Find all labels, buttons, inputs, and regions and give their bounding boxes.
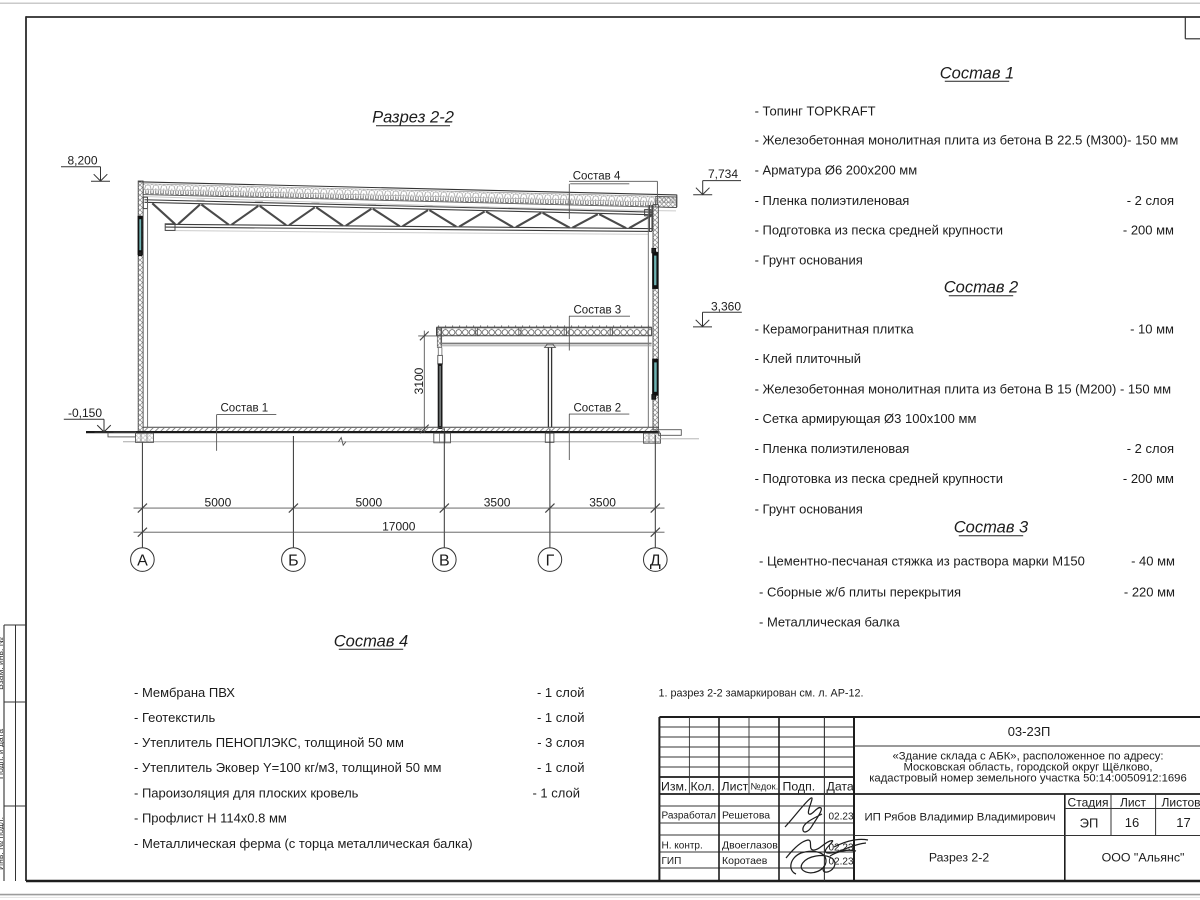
- svg-text:- Подготовка из песка средней: - Подготовка из песка средней крупности: [755, 471, 1003, 486]
- svg-text:1. разрез 2-2 замаркирован см.: 1. разрез 2-2 замаркирован см. л. АР-12.: [659, 687, 864, 699]
- svg-text:- 200 мм: - 200 мм: [1123, 471, 1174, 486]
- svg-text:- 1 слой: - 1 слой: [537, 760, 585, 775]
- svg-text:- Металлическая ферма (с торца: - Металлическая ферма (с торца металличе…: [134, 836, 473, 851]
- svg-text:№док.: №док.: [751, 782, 779, 793]
- svg-text:Изм.: Изм.: [661, 780, 687, 794]
- svg-text:Б: Б: [288, 552, 299, 569]
- svg-text:А: А: [137, 552, 148, 569]
- svg-text:- Пароизоляция для плоских кро: - Пароизоляция для плоских кровель: [134, 786, 359, 801]
- svg-text:- Утеплитель ПЕНОПЛЭКС, толщин: - Утеплитель ПЕНОПЛЭКС, толщиной 50 мм: [134, 735, 404, 750]
- svg-text:Инв. № подл.: Инв. № подл.: [0, 817, 5, 870]
- svg-text:5000: 5000: [355, 495, 382, 509]
- svg-text:- 40 мм: - 40 мм: [1131, 554, 1175, 569]
- svg-text:17: 17: [1176, 815, 1190, 830]
- svg-text:Состав 2: Состав 2: [944, 279, 1018, 297]
- svg-text:Н. контр.: Н. контр.: [662, 841, 703, 852]
- svg-text:ООО "Альянс": ООО "Альянс": [1102, 851, 1185, 865]
- svg-text:- 1 слой: - 1 слой: [537, 685, 585, 700]
- svg-text:ГИП: ГИП: [662, 856, 682, 867]
- svg-text:Стадия: Стадия: [1068, 796, 1109, 810]
- svg-text:- 220 мм: - 220 мм: [1124, 585, 1175, 600]
- svg-text:- 1 слой: - 1 слой: [537, 710, 585, 725]
- svg-text:Разрез 2-2: Разрез 2-2: [929, 851, 990, 865]
- svg-text:- Арматура Ø6 200х200 мм: - Арматура Ø6 200х200 мм: [755, 163, 918, 178]
- svg-text:- 2 слоя: - 2 слоя: [1127, 193, 1174, 208]
- svg-text:03-23П: 03-23П: [1008, 724, 1051, 739]
- svg-text:-0,150: -0,150: [68, 406, 102, 420]
- svg-text:Состав 3: Состав 3: [954, 519, 1029, 537]
- svg-text:3500: 3500: [589, 495, 616, 509]
- svg-text:Лист: Лист: [722, 780, 749, 794]
- svg-text:- 2 слоя: - 2 слоя: [1127, 441, 1174, 456]
- svg-text:Взам. инв. №: Взам. инв. №: [0, 637, 5, 690]
- svg-text:- Сборные ж/б плиты перекрытия: - Сборные ж/б плиты перекрытия: [759, 585, 961, 600]
- svg-text:- Грунт основания: - Грунт основания: [755, 502, 863, 517]
- svg-text:Подп. и дата: Подп. и дата: [0, 729, 5, 779]
- svg-text:3100: 3100: [412, 367, 426, 394]
- svg-text:кадастровый номер земельного у: кадастровый номер земельного участка 50:…: [869, 773, 1187, 785]
- svg-text:- Цементно-песчаная стяжка из: - Цементно-песчаная стяжка из раствора м…: [759, 554, 1085, 569]
- svg-text:Листов: Листов: [1162, 796, 1200, 810]
- svg-text:- 200 мм: - 200 мм: [1123, 223, 1174, 238]
- svg-text:Состав 2: Состав 2: [574, 403, 622, 415]
- svg-text:- 10 мм: - 10 мм: [1130, 322, 1174, 337]
- svg-text:Разрез 2-2: Разрез 2-2: [372, 109, 454, 127]
- svg-text:5000: 5000: [205, 495, 232, 509]
- svg-text:Состав 4: Состав 4: [573, 171, 621, 183]
- svg-text:- 3 слоя: - 3 слоя: [537, 735, 584, 750]
- svg-text:ЭП: ЭП: [1080, 816, 1099, 831]
- svg-text:- Пленка полиэтиленовая: - Пленка полиэтиленовая: [755, 193, 910, 208]
- svg-text:Разработал: Разработал: [662, 810, 717, 822]
- svg-text:Решетова: Решетова: [722, 810, 770, 822]
- svg-text:- Грунт основания: - Грунт основания: [755, 253, 863, 268]
- svg-text:Кол.: Кол.: [691, 780, 715, 794]
- svg-text:В: В: [439, 552, 450, 569]
- svg-text:- Железобетонная монолитная п: - Железобетонная монолитная плита из бет…: [755, 382, 1172, 397]
- svg-text:- Металлическая балка: - Металлическая балка: [759, 615, 900, 630]
- svg-text:ИП Рябов Владимир Владимирович: ИП Рябов Владимир Владимирович: [864, 812, 1055, 824]
- svg-text:3,360: 3,360: [711, 299, 741, 313]
- svg-text:- Подготовка из песка средней: - Подготовка из песка средней крупности: [755, 223, 1003, 238]
- svg-text:Г: Г: [546, 552, 555, 569]
- svg-text:- Геотекстиль: - Геотекстиль: [134, 710, 215, 725]
- svg-text:- Мембрана ПВХ: - Мембрана ПВХ: [134, 685, 235, 700]
- svg-text:Коротаев: Коротаев: [722, 855, 768, 867]
- svg-text:Состав 4: Состав 4: [334, 632, 408, 650]
- svg-text:Двоеглазов: Двоеглазов: [722, 840, 778, 852]
- svg-text:- Сетка армирующая Ø3 100х100: - Сетка армирующая Ø3 100х100 мм: [755, 411, 977, 426]
- svg-text:- Пленка полиэтиленовая: - Пленка полиэтиленовая: [755, 441, 910, 456]
- svg-text:17000: 17000: [382, 519, 416, 533]
- svg-text:7,734: 7,734: [708, 167, 738, 181]
- svg-text:Подп.: Подп.: [783, 780, 816, 794]
- svg-text:Д: Д: [650, 552, 661, 569]
- svg-text:- Профлист Н 114х0.8 мм: - Профлист Н 114х0.8 мм: [134, 811, 287, 826]
- svg-text:Состав 1: Состав 1: [940, 64, 1014, 82]
- svg-text:- Керамогранитная плитка: - Керамогранитная плитка: [755, 322, 915, 337]
- svg-text:- Железобетонная монолитная п: - Железобетонная монолитная плита из бет…: [755, 133, 1179, 148]
- svg-text:Лист: Лист: [1120, 796, 1147, 810]
- svg-text:16: 16: [1125, 815, 1139, 830]
- svg-text:Состав 1: Состав 1: [221, 403, 269, 415]
- svg-text:- Клей плиточный: - Клей плиточный: [755, 351, 861, 366]
- svg-text:- Утеплитель Эковер Y=100 кг/м: - Утеплитель Эковер Y=100 кг/м3, толщино…: [134, 760, 442, 775]
- svg-text:Дата: Дата: [827, 780, 854, 794]
- svg-text:02.23: 02.23: [829, 812, 854, 823]
- svg-text:- Топинг TOPKRAFT: - Топинг TOPKRAFT: [755, 104, 876, 119]
- svg-text:8,200: 8,200: [68, 153, 98, 167]
- svg-text:Состав 3: Состав 3: [574, 305, 622, 317]
- svg-text:- 1 слой: - 1 слой: [532, 786, 580, 801]
- svg-text:3500: 3500: [484, 495, 511, 509]
